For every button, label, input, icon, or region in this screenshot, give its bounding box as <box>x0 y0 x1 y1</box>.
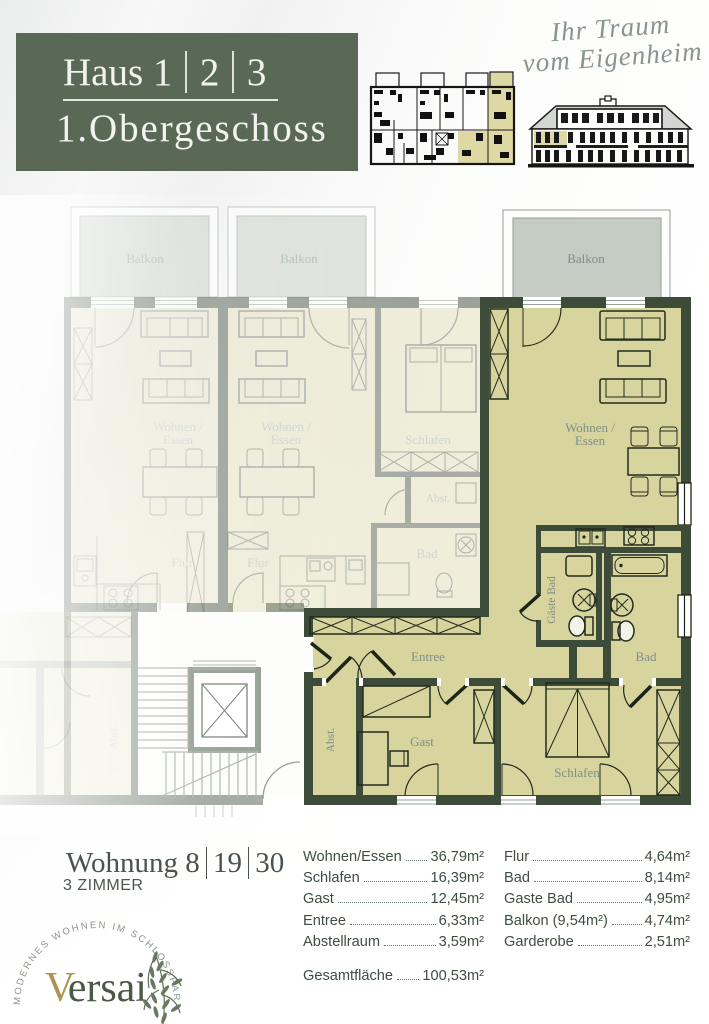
svg-text:Bad: Bad <box>636 649 657 664</box>
svg-text:Schlafen: Schlafen <box>554 765 600 780</box>
svg-text:Gäste Bad: Gäste Bad <box>546 576 558 624</box>
svg-text:Abst.: Abst. <box>325 728 337 753</box>
svg-text:Versai: Versai <box>45 965 147 1011</box>
svg-text:Gast: Gast <box>410 734 434 749</box>
svg-text:Entree: Entree <box>411 649 445 664</box>
svg-text:Essen: Essen <box>575 433 606 448</box>
svg-text:Balkon: Balkon <box>567 251 605 266</box>
